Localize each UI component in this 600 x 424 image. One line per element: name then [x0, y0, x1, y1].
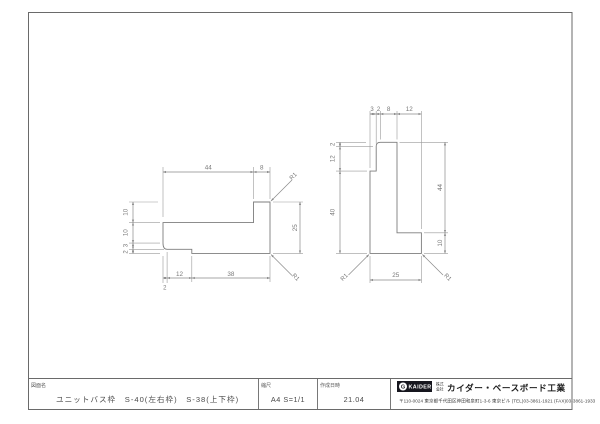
date-value: 21.04	[344, 395, 365, 404]
left-dim-top-8: 8	[260, 165, 264, 172]
left-profile-extension-lines	[129, 167, 303, 283]
right-dim-top-3: 3	[370, 107, 374, 113]
scale-value: A4 S=1/1	[271, 395, 305, 404]
right-radius-leader-left	[349, 255, 370, 276]
drawing-name-value: ユニットバス枠 S-40(左右枠) S-38(上下枠)	[56, 394, 239, 404]
right-dim-bottom-25: 25	[392, 272, 400, 279]
left-radius-label-top: R1	[289, 171, 299, 181]
scale-label: 縮尺	[261, 382, 271, 389]
cad-drawing-sheet: 44 8 10 10 3 2 25 12 38 2 R1 R1	[0, 0, 600, 424]
right-dim-left-12: 12	[330, 155, 337, 163]
company-logo-text: KAIDER	[409, 385, 432, 391]
left-radius-leader-bottom	[271, 255, 292, 276]
left-dim-right-25: 25	[292, 224, 299, 232]
right-dim-left-2: 2	[331, 142, 337, 146]
right-radius-leader-right	[422, 255, 443, 276]
left-dim-left-2: 2	[124, 250, 130, 254]
right-dim-right-44: 44	[437, 184, 444, 192]
left-dim-bottom-38: 38	[227, 271, 235, 278]
right-dim-right-10: 10	[437, 239, 444, 247]
company-logo-mark: G	[401, 385, 405, 391]
company-name: カイダー・ベースボード工業	[447, 382, 566, 393]
title-block: 図面名 ユニットバス枠 S-40(左右枠) S-38(上下枠) 縮尺 A4 S=…	[29, 379, 596, 410]
left-dim-left-10a: 10	[123, 208, 130, 216]
drawing-canvas: 44 8 10 10 3 2 25 12 38 2 R1 R1	[0, 0, 600, 424]
left-profile-view: 44 8 10 10 3 2 25 12 38 2 R1 R1	[123, 165, 304, 292]
right-profile-dimension-lines	[340, 114, 445, 280]
left-dim-bottom-2: 2	[163, 286, 167, 292]
left-profile-dimension-lines	[133, 172, 300, 278]
left-dim-bottom-12: 12	[176, 271, 184, 278]
left-dim-left-3: 3	[124, 243, 130, 247]
drawing-name-label: 図面名	[31, 382, 46, 389]
right-profile-outline	[370, 142, 421, 253]
left-dim-left-10b: 10	[123, 229, 130, 237]
right-dim-left-40: 40	[330, 208, 337, 216]
left-profile-outline	[163, 202, 270, 253]
right-profile-extension-lines	[336, 111, 448, 283]
company-prefix-bottom: 会社	[436, 387, 444, 392]
right-dim-top-12: 12	[406, 106, 414, 113]
company-prefix-top: 株式	[436, 382, 444, 387]
left-radius-leader-top	[271, 180, 292, 201]
date-label: 作成日時	[320, 382, 340, 389]
left-radius-label-bottom: R1	[290, 273, 300, 283]
right-dim-top-8: 8	[387, 106, 391, 113]
right-radius-label-right: R1	[442, 273, 452, 283]
company-address: 〒110-0024 東京都千代田区神田和泉町1-3-6 東京ビル (TEL)03…	[399, 398, 596, 405]
left-dim-top-44: 44	[205, 165, 213, 172]
right-radius-label-left: R1	[340, 272, 350, 282]
company-logo: G KAIDER	[397, 381, 432, 392]
right-profile-view: 3 2 8 12 2 12 40 44 10 25 R1 R1	[330, 106, 453, 283]
